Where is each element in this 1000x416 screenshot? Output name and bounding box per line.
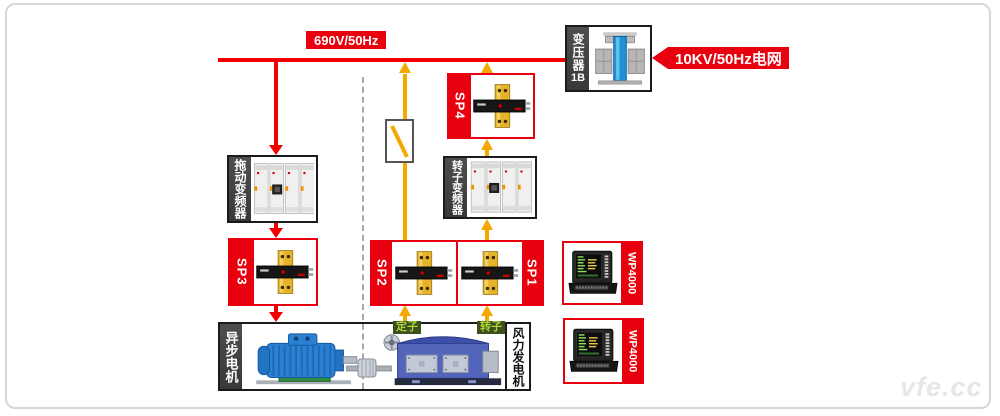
motor-label: 异步电机 [225,331,238,383]
inverter-cabinets-icon [470,161,532,214]
stator-tag: 定子 [393,321,421,334]
sp3-label: SP3 [236,258,249,286]
motor-icon [254,332,359,387]
sp3-box: SP3 [228,238,318,306]
inverter-to-sp4-arrow [481,139,493,150]
watermark: vfe.cc [900,372,983,403]
sp2-box: SP2 [370,240,458,306]
wp4000-upper-box: WP4000 [562,241,643,305]
wp4000-lower-label: WP4000 [627,330,638,372]
bus-voltage-label: 690V/50Hz [306,31,386,49]
drive-feed-arrow [269,145,283,155]
transformer-id: 1B [571,72,585,84]
stator-to-bus-arrow [399,62,411,73]
grid-flow-arrow [652,47,668,69]
diagram-canvas: 690V/50Hz 变压器 1B 10KV/50Hz电网 拖动变频器 转子变频器 [0,0,1000,416]
breaker-box [385,119,414,163]
power-sensor-icon [255,248,315,296]
power-sensor-icon [460,249,520,297]
generator-label: 风力发电机 [512,327,524,387]
drive-inverter-box: 拖动变频器 [227,155,318,223]
inverter-cabinets-icon [254,161,314,217]
rotor-tag: 转子 [477,321,505,334]
transformer-label: 变压器 [572,33,584,72]
drive-feed-line [274,62,278,146]
transformer-box: 变压器 1B [565,25,652,92]
generator-label-strip: 风力发电机 [505,324,529,389]
grid-label: 10KV/50Hz电网 [668,47,789,69]
transformer-icon [592,30,648,88]
sp4-box: SP4 [447,73,535,139]
sp1-box: SP1 [456,240,544,306]
rotor-inverter-label: 转子变频器 [451,160,462,215]
bus-line [218,58,565,62]
sp1-to-inverter-arrow [481,219,493,230]
sp1-label: SP1 [526,259,539,287]
motor-label-strip: 异步电机 [220,324,242,389]
rotor-to-sp1-arrow [481,305,493,316]
power-sensor-icon [394,249,454,297]
sp3-feed-arrow [269,228,283,238]
generator-icon [383,328,505,388]
power-analyzer-icon [566,250,620,296]
breaker-icon [387,121,412,161]
wp4000-upper-label: WP4000 [626,252,637,294]
sp2-label: SP2 [376,259,389,287]
rotor-inverter-box: 转子变频器 [443,156,537,219]
sp4-to-bus-arrow [481,62,493,73]
power-analyzer-icon [567,328,621,374]
stator-to-bus-line [403,74,407,119]
motor-feed-arrow [269,312,283,322]
power-sensor-icon [472,82,532,130]
wp4000-lower-box: WP4000 [563,318,644,384]
drive-inverter-label: 拖动变频器 [234,159,246,219]
breaker-to-sp2-line [403,163,407,240]
stator-to-sp2-arrow [399,305,411,316]
sp4-label: SP4 [454,92,467,120]
